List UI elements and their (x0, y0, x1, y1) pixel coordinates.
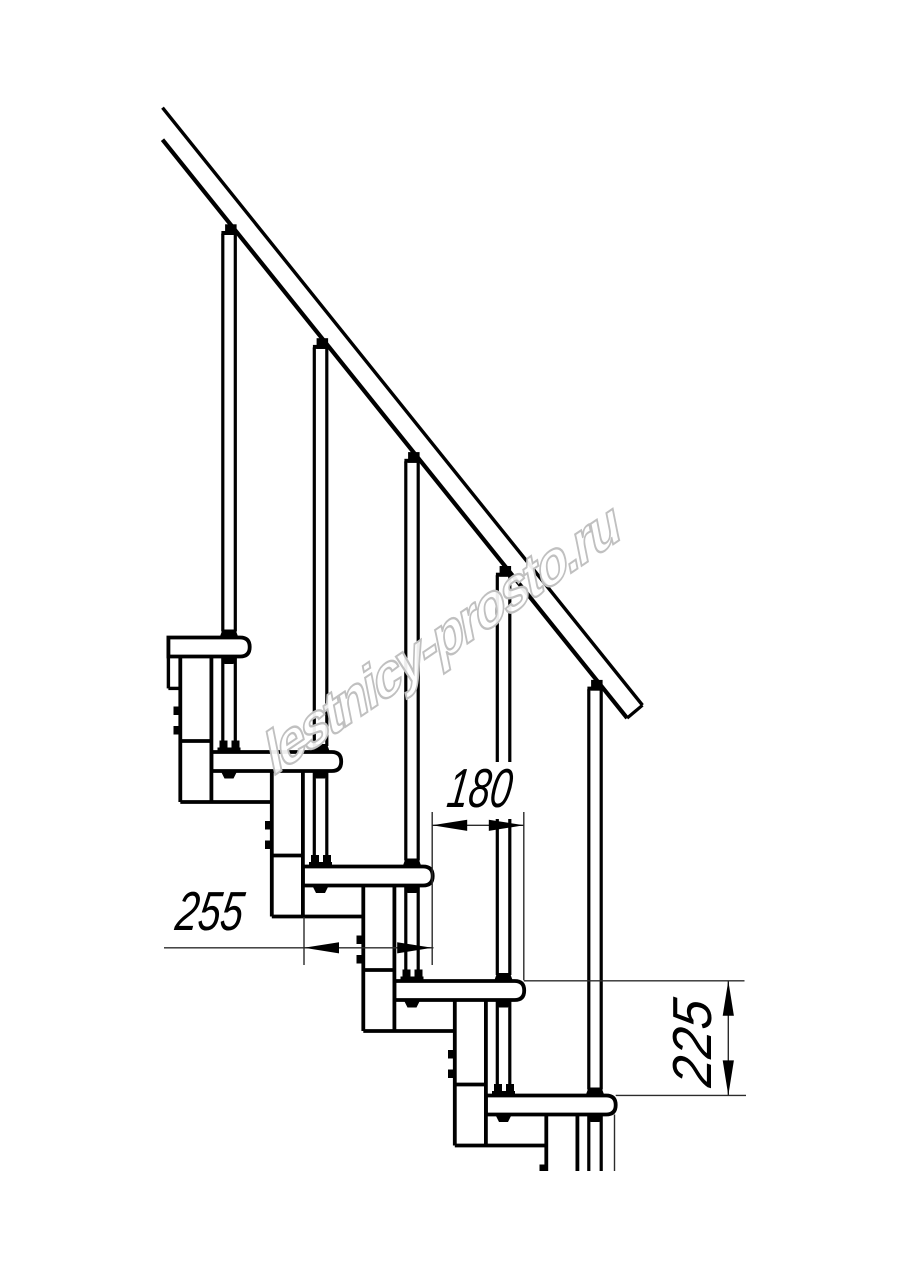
svg-text:255: 255 (172, 880, 249, 942)
svg-text:180: 180 (444, 757, 517, 819)
svg-text:225: 225 (661, 995, 723, 1091)
